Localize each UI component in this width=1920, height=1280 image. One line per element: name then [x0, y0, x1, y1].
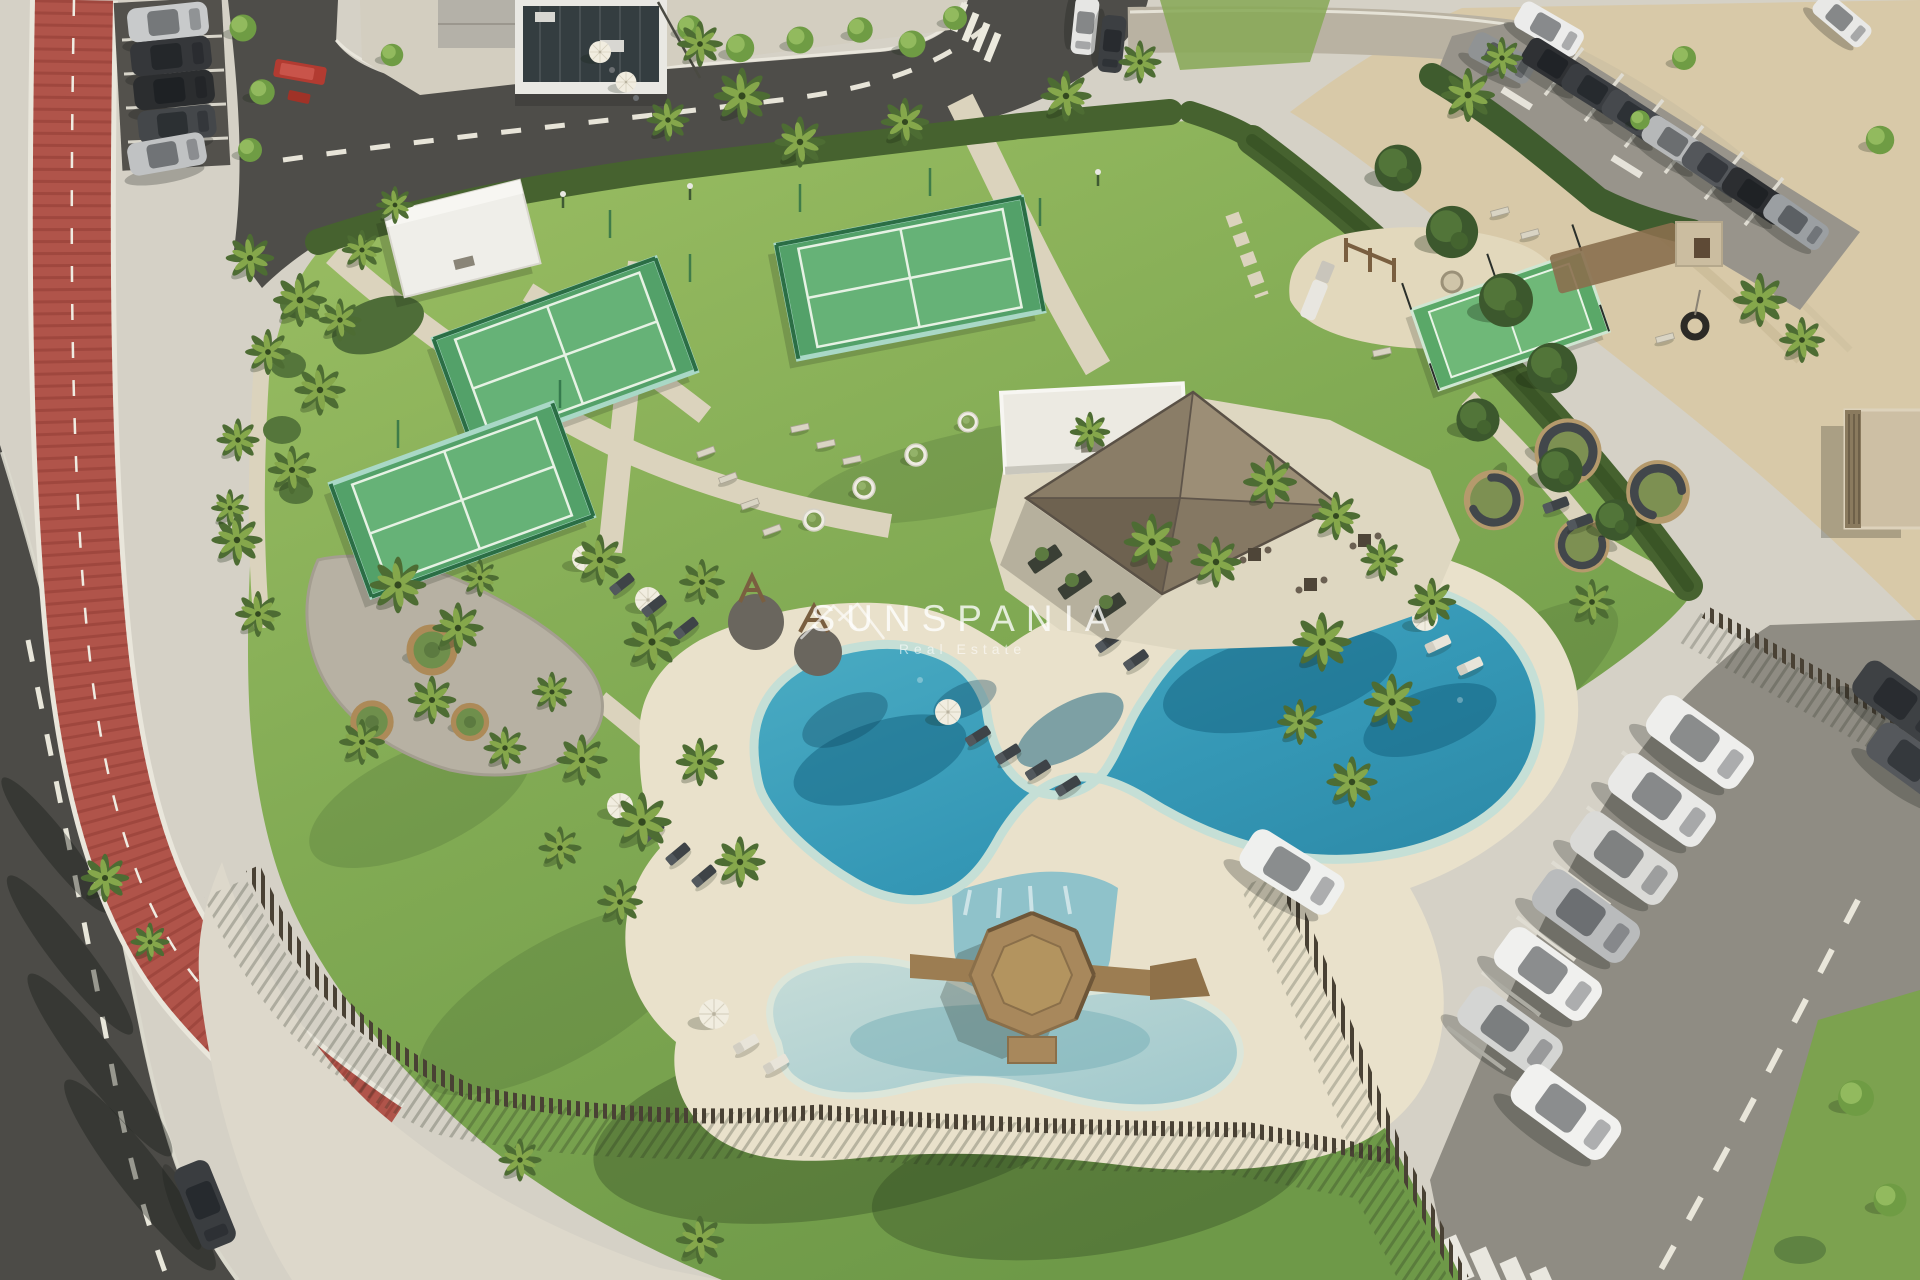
pool-area — [562, 545, 1578, 1170]
scene-canvas — [0, 0, 1920, 1280]
street-parking — [114, 0, 231, 190]
garden-shed — [1676, 222, 1722, 266]
neighbor-court — [1160, 0, 1330, 70]
corner-building — [1821, 410, 1920, 538]
aerial-render: SUNSPANIA Real Estate — [0, 0, 1920, 1280]
